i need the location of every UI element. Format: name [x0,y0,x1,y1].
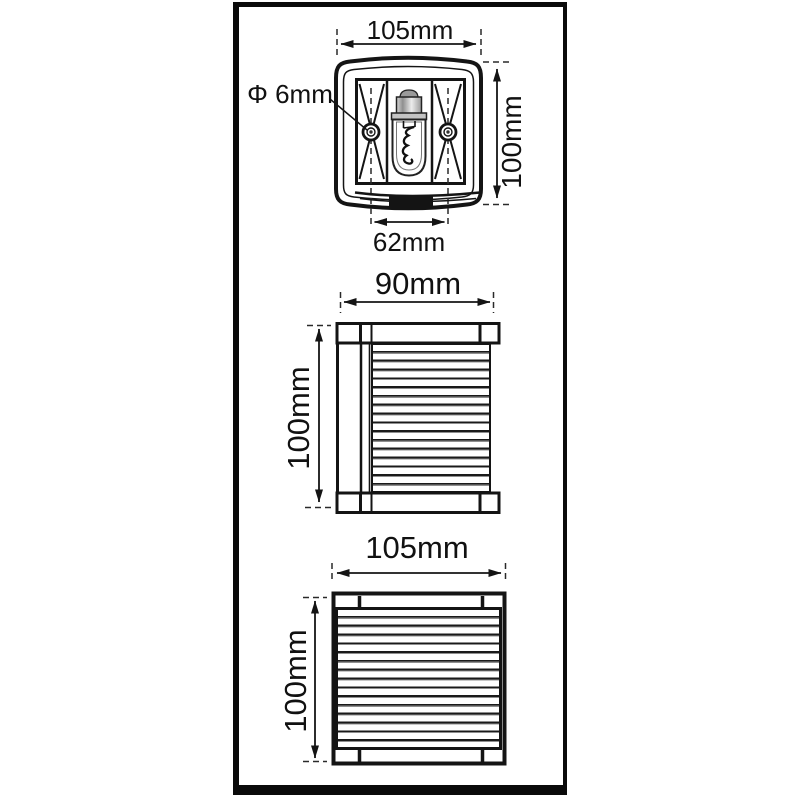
drawing-canvas: 105mm Φ 6mm 100mm 62mm 90mm 100mm 105mm … [0,0,800,800]
dim-label-hole-diameter: Φ 6mm [240,80,340,109]
lens-band [355,193,480,197]
side-louver-panel [371,343,491,493]
bulb-icon [392,90,427,176]
screw-boss-left-icon [363,124,379,140]
dim-label-side-width: 90mm [348,267,488,301]
front-louver-panel [335,607,502,750]
dim-label-side-height: 100mm [284,363,314,473]
side-bottom-bar-dividers [361,494,481,513]
connector-block [389,197,433,210]
top-section-view [330,29,509,228]
screw-boss-right-icon [440,124,456,140]
dim-label-top-height: 100mm [497,87,527,197]
dim-label-hole-spacing: 62mm [339,228,479,257]
dim-label-top-width: 105mm [340,16,480,45]
dim-label-front-height: 100mm [281,626,311,736]
side-top-bar-dividers [361,324,481,343]
dim-label-front-width: 105mm [347,531,487,565]
